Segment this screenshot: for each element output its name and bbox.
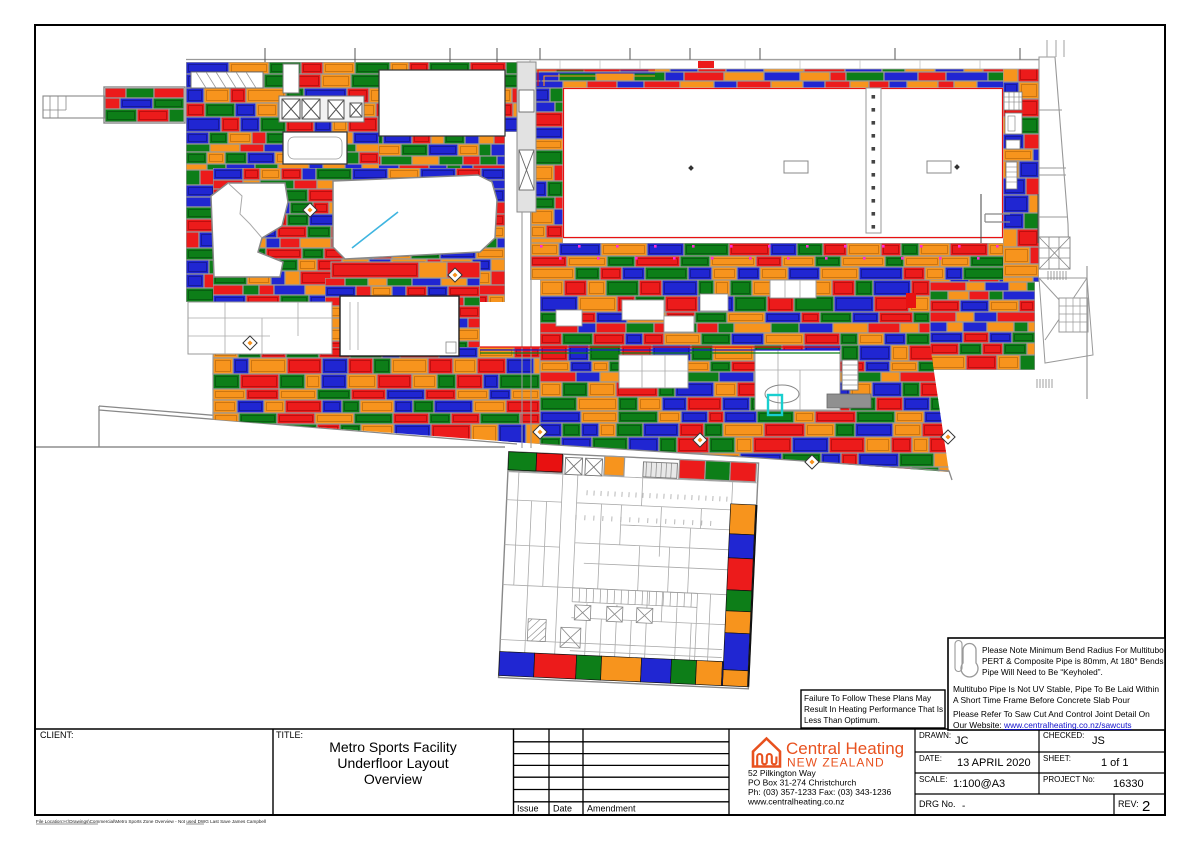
svg-text:Issue: Issue [517,804,539,814]
svg-text:CLIENT:: CLIENT: [40,730,74,740]
svg-text:SHEET:: SHEET: [1043,754,1071,763]
svg-text:Overview: Overview [364,771,423,787]
svg-text:Metro Sports Facility: Metro Sports Facility [329,739,457,755]
svg-text:Less Than Optimum.: Less Than Optimum. [804,716,880,725]
svg-text:TITLE:: TITLE: [276,730,303,740]
svg-text:JC: JC [955,735,969,747]
svg-text:JS: JS [1092,735,1105,747]
svg-text:52 Pilkington Way: 52 Pilkington Way [748,768,816,778]
svg-text:PERT & Composite Pipe is 80mm,: PERT & Composite Pipe is 80mm, At 180° B… [982,656,1163,666]
svg-text:A Short Time Frame Before Conc: A Short Time Frame Before Concrete Slab … [953,695,1130,705]
svg-text:SCALE:: SCALE: [919,775,947,784]
svg-text:File Location:H:\Drawings\Comm: File Location:H:\Drawings\Commercial\Met… [36,819,266,824]
svg-text:PROJECT No:: PROJECT No: [1043,775,1095,784]
svg-text:Amendment: Amendment [587,804,636,814]
svg-text:13 APRIL 2020: 13 APRIL 2020 [957,757,1031,769]
svg-text:REV:: REV: [1118,799,1139,809]
svg-text:Date: Date [553,804,572,814]
svg-text:-: - [962,801,965,812]
svg-text:Pipe Will Need to Be “Keyholed: Pipe Will Need to Be “Keyholed”. [982,667,1103,677]
svg-text:Please Note Minimum Bend Radiu: Please Note Minimum Bend Radius For Mult… [982,645,1164,655]
svg-text:1 of 1: 1 of 1 [1101,757,1129,769]
svg-text:Result In Heating Performance: Result In Heating Performance That Is [804,705,943,714]
svg-text:Multitubo Pipe Is Not UV Stabl: Multitubo Pipe Is Not UV Stable, Pipe To… [953,684,1159,694]
svg-text:DRAWN:: DRAWN: [919,731,951,740]
svg-text:PO Box 31-274 Christchurch: PO Box 31-274 Christchurch [748,778,856,788]
svg-text:1:100@A3: 1:100@A3 [953,778,1005,790]
svg-text:Underfloor Layout: Underfloor Layout [337,755,448,771]
svg-text:Please Refer To Saw Cut And Co: Please Refer To Saw Cut And Control Join… [953,709,1150,719]
svg-text:2: 2 [1142,798,1150,815]
svg-text:16330: 16330 [1113,778,1144,790]
svg-text:www.centralheating.co.nz: www.centralheating.co.nz [747,797,844,807]
svg-text:CHECKED:: CHECKED: [1043,731,1084,740]
svg-text:Failure To Follow These Plans: Failure To Follow These Plans May [804,694,932,703]
svg-text:DRG No.: DRG No. [919,799,956,809]
svg-text:Ph: (03) 357-1233 Fax: (03) 34: Ph: (03) 357-1233 Fax: (03) 343-1236 [748,787,891,797]
svg-text:Our Website: www.centralheatin: Our Website: www.centralheating.co.nz/sa… [953,720,1132,730]
svg-text:DATE:: DATE: [919,754,942,763]
